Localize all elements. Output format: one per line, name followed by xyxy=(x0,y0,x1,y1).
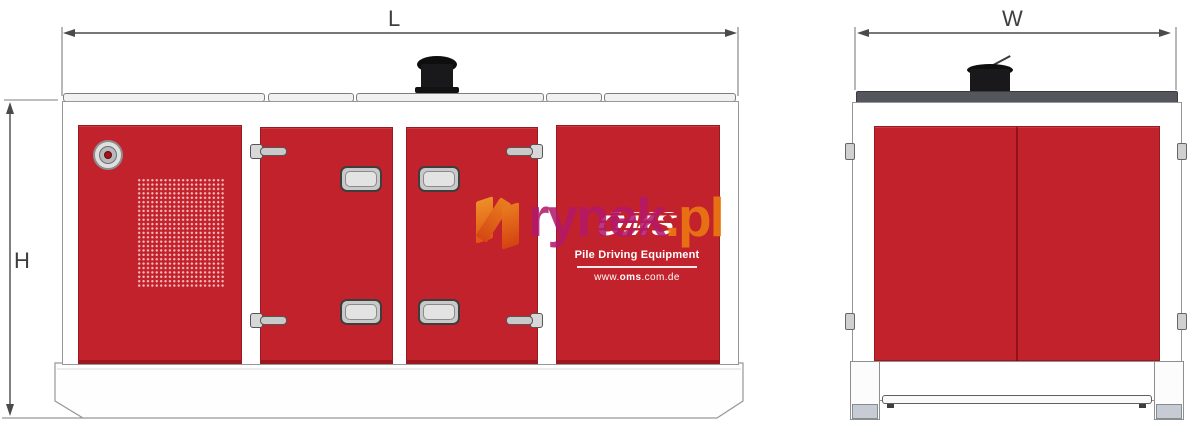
handle-bar xyxy=(345,304,377,320)
slat-clip xyxy=(1139,404,1146,408)
arrow-up-icon xyxy=(6,102,14,114)
website-prefix: www. xyxy=(594,272,620,283)
handle-bar xyxy=(423,304,455,320)
watermark-text-suffix: .pl xyxy=(665,186,723,248)
hinge-paddle xyxy=(260,147,287,156)
side-base-slat xyxy=(882,395,1152,404)
door-handle-icon xyxy=(418,299,460,325)
side-doors xyxy=(874,126,1160,364)
door-handle-icon xyxy=(340,299,382,325)
handle-bar xyxy=(423,171,455,187)
front-base-skid xyxy=(55,363,743,418)
hinge-paddle xyxy=(506,316,533,325)
watermark-text-main: rynek xyxy=(528,186,665,248)
dimension-label-length: L xyxy=(388,6,400,32)
hinge-pin-icon xyxy=(845,313,855,330)
door-split-line xyxy=(1016,127,1018,363)
watermark-text: rynek.pl xyxy=(528,185,723,249)
dimension-label-height: H xyxy=(14,248,30,274)
hinge-pin-icon xyxy=(1177,313,1187,330)
port-center xyxy=(104,151,112,159)
door-hinge-icon xyxy=(506,144,543,159)
brand-website: www.oms.com.de xyxy=(594,272,680,283)
door-handle-icon xyxy=(340,166,382,192)
door-hinge-icon xyxy=(250,313,287,328)
website-suffix: .com.de xyxy=(641,272,679,283)
watermark-logo-icon xyxy=(502,202,519,250)
vent-grille-icon xyxy=(137,178,224,288)
hinge-pin-icon xyxy=(1177,143,1187,160)
dimension-label-width: W xyxy=(1002,6,1023,32)
hinge-paddle xyxy=(260,316,287,325)
port-ring xyxy=(99,146,117,164)
arrow-down-icon xyxy=(6,404,14,416)
front-door-1 xyxy=(260,127,393,364)
arrow-right-icon xyxy=(1159,29,1171,37)
website-name: oms xyxy=(620,272,642,283)
door-handle-icon xyxy=(418,166,460,192)
hinge-paddle xyxy=(506,147,533,156)
diagram-canvas: L H W xyxy=(0,0,1200,438)
watermark: rynek.pl xyxy=(474,191,724,259)
exhaust-cap-front-icon xyxy=(415,56,459,94)
door-hinge-icon xyxy=(250,144,287,159)
machine-foot xyxy=(1156,404,1182,419)
handle-bar xyxy=(345,171,377,187)
ext-lines-W xyxy=(855,27,1176,90)
cap-body xyxy=(421,64,453,89)
lifting-port-icon xyxy=(93,140,123,170)
brand-divider xyxy=(577,266,697,268)
door-hinge-icon xyxy=(506,313,543,328)
ext-lines-L xyxy=(62,27,738,96)
machine-foot xyxy=(852,404,878,419)
arrow-right-icon xyxy=(725,29,737,37)
hinge-pin-icon xyxy=(845,143,855,160)
slat-clip xyxy=(887,404,894,408)
arrow-left-icon xyxy=(63,29,75,37)
arrow-left-icon xyxy=(857,29,869,37)
